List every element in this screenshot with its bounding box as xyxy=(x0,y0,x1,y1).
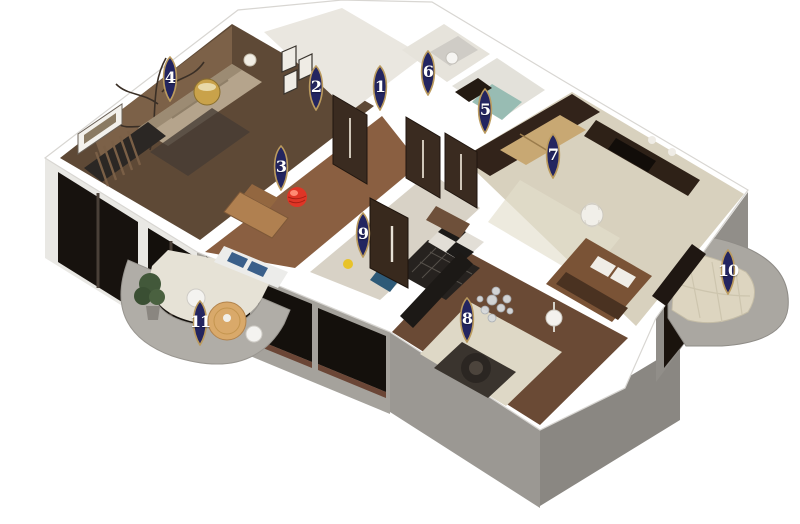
marker-number: 6 xyxy=(416,50,440,96)
marker-10[interactable]: 10 xyxy=(716,249,740,295)
marker-3[interactable]: 3 xyxy=(269,145,293,191)
marker-6[interactable]: 6 xyxy=(416,50,440,96)
marker-2[interactable]: 2 xyxy=(304,65,328,111)
marker-number: 8 xyxy=(455,297,479,343)
pom-pendant-lamp xyxy=(581,204,603,226)
marker-7[interactable]: 7 xyxy=(541,133,565,179)
floor-plan-render xyxy=(0,0,800,524)
marker-number: 3 xyxy=(269,145,293,191)
marker-5[interactable]: 5 xyxy=(473,88,497,134)
marker-number: 11 xyxy=(188,300,212,346)
balcony-chair-2 xyxy=(246,326,262,342)
marker-4[interactable]: 4 xyxy=(158,56,182,102)
marker-number: 4 xyxy=(158,56,182,102)
marker-9[interactable]: 9 xyxy=(351,212,375,258)
marker-8[interactable]: 8 xyxy=(455,297,479,343)
yellow-vase xyxy=(343,259,353,269)
marker-number: 9 xyxy=(351,212,375,258)
table-lamp xyxy=(244,54,256,66)
toilet xyxy=(446,52,458,64)
marker-11[interactable]: 11 xyxy=(188,300,212,346)
marker-number: 5 xyxy=(473,88,497,134)
floorplan-stage: 1234567891011 xyxy=(0,0,800,524)
gold-pendant-lamp xyxy=(194,79,220,105)
marker-number: 7 xyxy=(541,133,565,179)
marker-1[interactable]: 1 xyxy=(368,65,392,111)
marker-number: 1 xyxy=(368,65,392,111)
marker-number: 2 xyxy=(304,65,328,111)
marker-number: 10 xyxy=(716,249,740,295)
